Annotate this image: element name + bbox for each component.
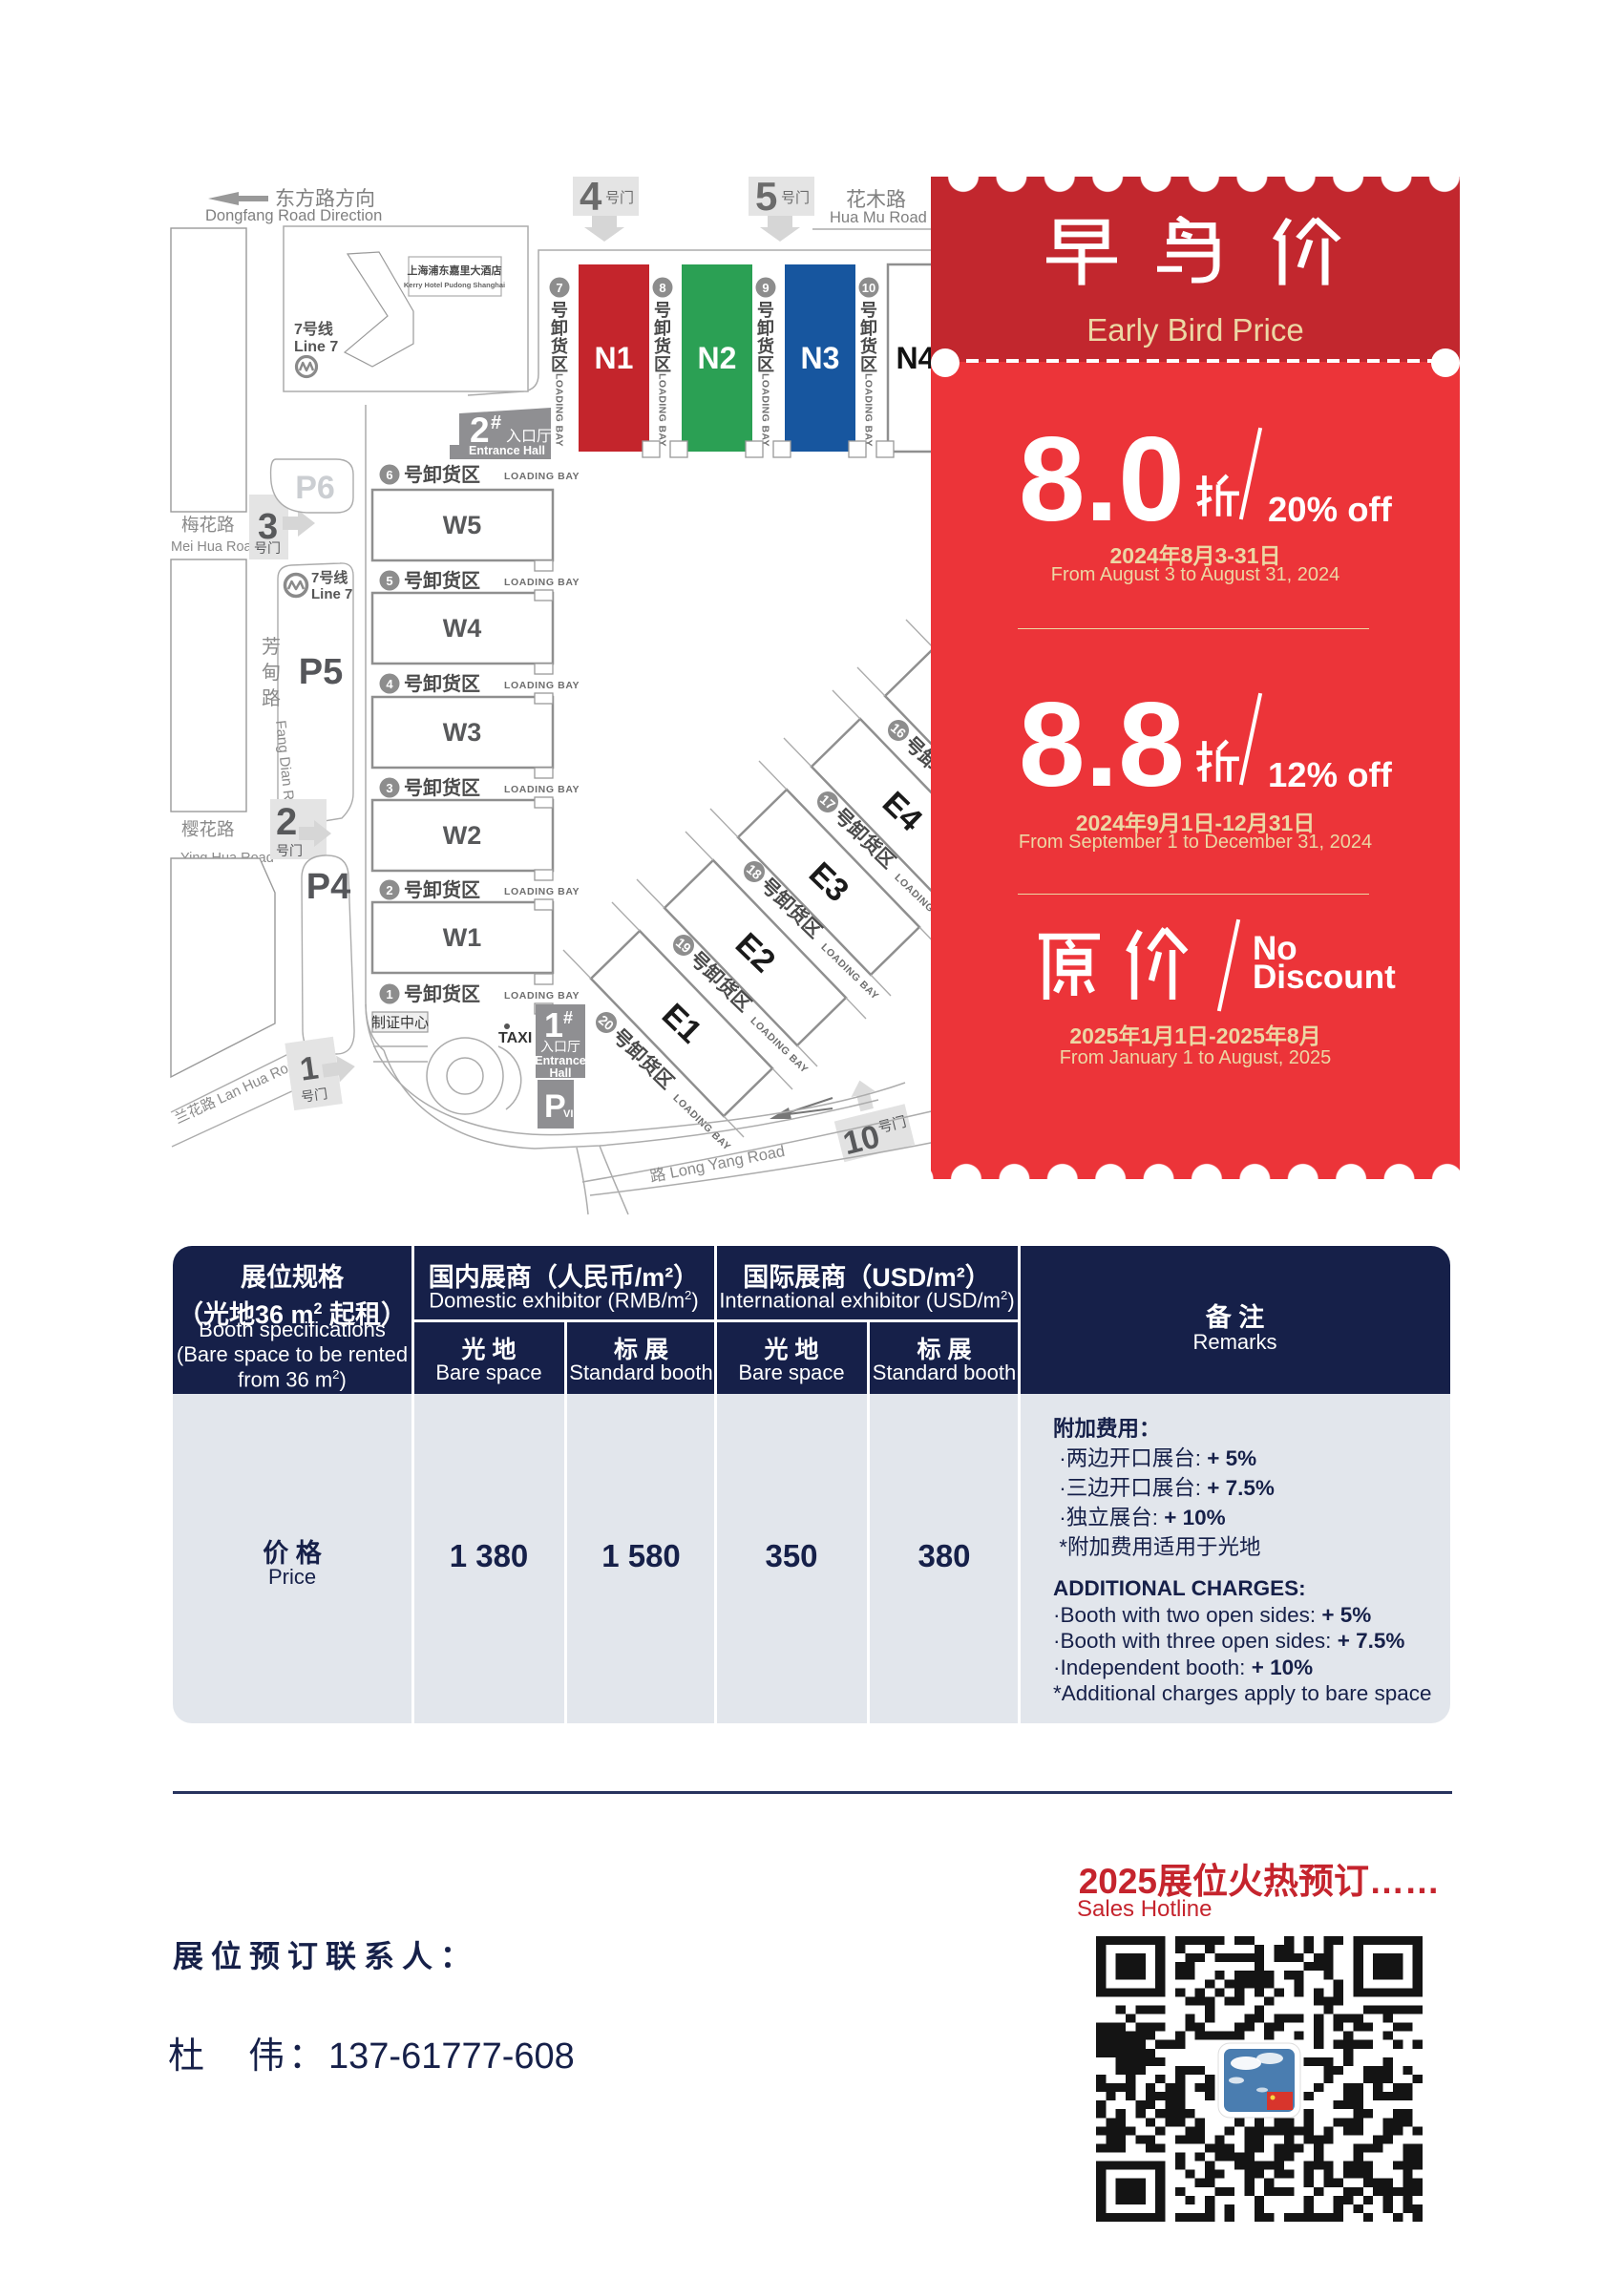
- svg-text:LOADING BAY: LOADING BAY: [554, 373, 565, 447]
- svg-text:号卸货区: 号卸货区: [404, 569, 480, 592]
- svg-text:8: 8: [659, 281, 665, 295]
- svg-text:梅花路: 梅花路: [181, 515, 235, 535]
- svg-text:入口厅: 入口厅: [540, 1039, 580, 1054]
- svg-text:4: 4: [580, 174, 602, 219]
- svg-text:LOADING BAY: LOADING BAY: [504, 680, 580, 691]
- svg-text:号门: 号门: [605, 190, 634, 206]
- svg-text:3: 3: [386, 781, 392, 795]
- svg-text:号卸货区: 号卸货区: [404, 982, 480, 1005]
- svg-text:2: 2: [386, 883, 392, 897]
- svg-text:W5: W5: [443, 511, 482, 539]
- svg-text:上海浦东嘉里大酒店: 上海浦东嘉里大酒店: [408, 264, 502, 277]
- svg-text:号卸货区: 号卸货区: [757, 301, 774, 374]
- svg-text:N4: N4: [896, 341, 936, 375]
- svg-text:LOADING BAY: LOADING BAY: [504, 990, 580, 1002]
- svg-text:#: #: [563, 1008, 573, 1027]
- svg-text:7: 7: [556, 281, 562, 295]
- svg-text:6: 6: [386, 468, 392, 482]
- svg-text:W1: W1: [443, 923, 482, 952]
- svg-text:LOADING BAY: LOADING BAY: [863, 373, 875, 447]
- svg-text:LOADING BAY: LOADING BAY: [504, 886, 580, 897]
- svg-text:号卸货区: 号卸货区: [654, 301, 671, 374]
- svg-text:入口厅: 入口厅: [506, 429, 552, 445]
- svg-text:芳甸路: 芳甸路: [262, 636, 281, 709]
- svg-text:LOADING BAY: LOADING BAY: [504, 784, 580, 795]
- svg-text:号卸货区: 号卸货区: [860, 301, 877, 374]
- svg-text:10: 10: [862, 281, 875, 295]
- svg-text:7号线: 7号线: [311, 569, 348, 586]
- svg-text:P5: P5: [299, 652, 343, 692]
- svg-text:号卸货区: 号卸货区: [404, 463, 480, 486]
- svg-text:号卸货区: 号卸货区: [404, 776, 480, 799]
- svg-text:号门: 号门: [254, 540, 281, 556]
- svg-text:LOADING BAY: LOADING BAY: [657, 373, 668, 447]
- svg-text:号卸货区: 号卸货区: [404, 672, 480, 695]
- svg-text:号门: 号门: [781, 190, 810, 206]
- svg-text:W4: W4: [443, 614, 482, 643]
- svg-text:号卸货区: 号卸货区: [404, 878, 480, 901]
- svg-text:Hua Mu Road: Hua Mu Road: [830, 209, 927, 226]
- svg-text:P6: P6: [295, 470, 335, 506]
- svg-text:5: 5: [386, 574, 392, 588]
- svg-text:5: 5: [755, 174, 777, 219]
- svg-text:9: 9: [762, 281, 769, 295]
- svg-text:Dongfang Road Direction: Dongfang Road Direction: [205, 207, 382, 224]
- svg-text:Line 7: Line 7: [311, 586, 352, 602]
- svg-text:LOADING BAY: LOADING BAY: [504, 471, 580, 482]
- svg-text:2: 2: [276, 801, 297, 843]
- svg-text:Line 7: Line 7: [294, 339, 338, 355]
- svg-text:Hall: Hall: [550, 1066, 572, 1080]
- svg-text:VIP: VIP: [563, 1108, 580, 1120]
- svg-text:Kerry Hotel Pudong Shanghai: Kerry Hotel Pudong Shanghai: [404, 281, 505, 289]
- svg-text:W2: W2: [443, 821, 482, 850]
- svg-text:4: 4: [386, 677, 393, 691]
- svg-text:W3: W3: [443, 718, 482, 747]
- svg-text:P4: P4: [306, 867, 350, 907]
- svg-text:樱花路: 樱花路: [181, 819, 235, 839]
- svg-text:N3: N3: [801, 341, 840, 375]
- svg-text:TAXI: TAXI: [498, 1030, 532, 1046]
- svg-text:号卸货区: 号卸货区: [551, 301, 568, 374]
- svg-text:Entrance: Entrance: [535, 1054, 586, 1067]
- svg-text:号门: 号门: [276, 843, 303, 858]
- svg-text:花木路: 花木路: [846, 189, 906, 211]
- svg-text:制证中心: 制证中心: [371, 1015, 429, 1031]
- svg-text:Mei Hua Road: Mei Hua Road: [171, 539, 260, 555]
- svg-text:N2: N2: [698, 341, 737, 375]
- svg-text:#: #: [491, 412, 501, 433]
- svg-text:N1: N1: [595, 341, 634, 375]
- svg-text:1: 1: [386, 987, 392, 1002]
- svg-text:LOADING BAY: LOADING BAY: [760, 373, 771, 447]
- svg-text:7号线: 7号线: [294, 320, 333, 338]
- svg-text:Entrance Hall: Entrance Hall: [469, 444, 545, 457]
- svg-text:LOADING BAY: LOADING BAY: [504, 577, 580, 588]
